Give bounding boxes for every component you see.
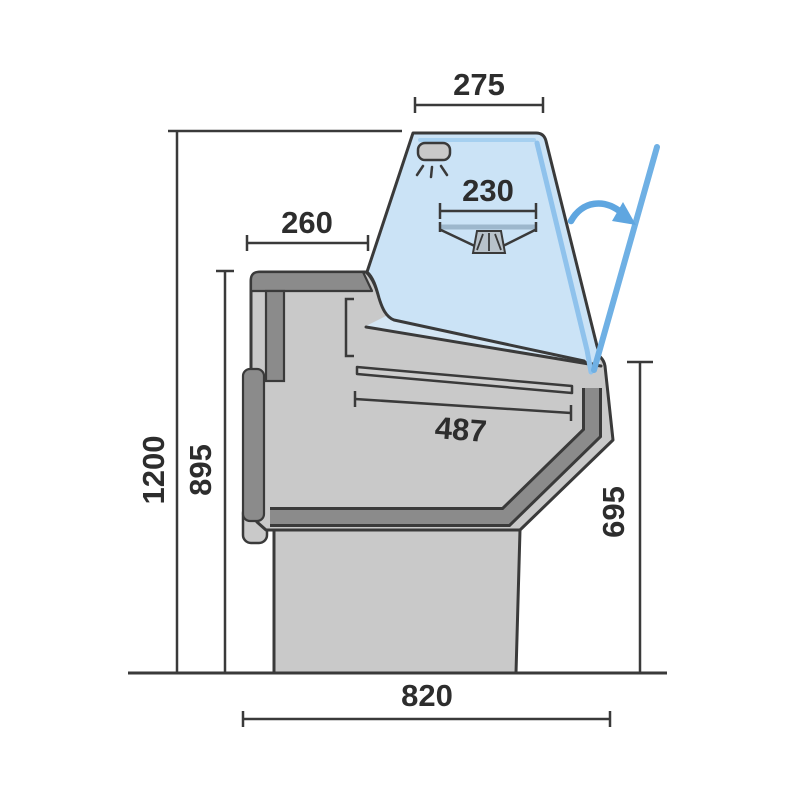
dim-overall-height-label: 1200 xyxy=(136,436,171,505)
dim-top-width-label: 275 xyxy=(453,67,505,102)
glass-opening-arrow xyxy=(571,202,636,225)
dim-shelf-width-label: 230 xyxy=(462,173,514,208)
left-bumper xyxy=(243,369,264,521)
dim-deck-length-label: 487 xyxy=(434,410,488,449)
open-glass-line xyxy=(594,147,657,370)
dim-front-height-label: 695 xyxy=(596,486,631,538)
dim-base-depth-label: 820 xyxy=(401,678,453,713)
dim-worktop-height-label: 895 xyxy=(183,444,218,496)
worktop-trim xyxy=(251,272,372,291)
base-plinth xyxy=(274,530,520,673)
diagram-canvas: 275 230 260 487 1200 895 695 820 xyxy=(0,0,800,800)
dim-rear-depth-label: 260 xyxy=(281,205,333,240)
rear-duct-trim xyxy=(266,291,284,381)
